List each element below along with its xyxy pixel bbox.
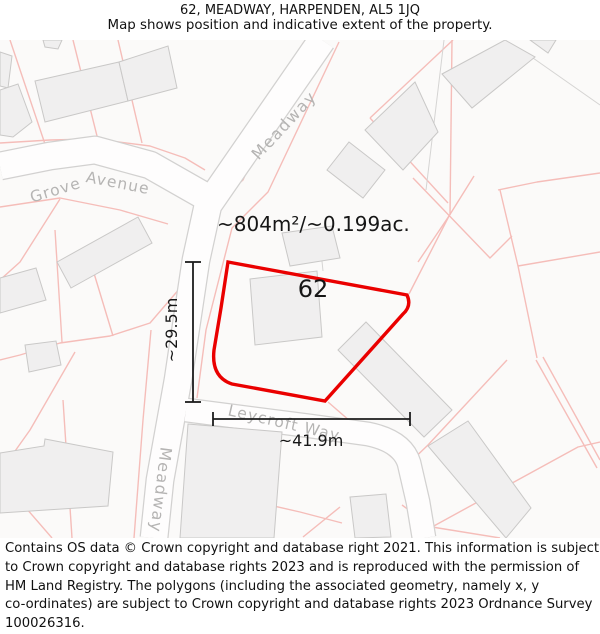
page-subtitle: Map shows position and indicative extent…: [0, 18, 600, 34]
copyright-footer: Contains OS data © Crown copyright and d…: [0, 538, 600, 625]
horizontal-dimension-label: ~41.9m: [279, 431, 344, 450]
footer-line: Contains OS data © Crown copyright and d…: [5, 540, 600, 559]
map-canvas: Grove Avenue Meadway Meadway Leycroft Wa…: [0, 40, 600, 538]
footer-line: to Crown copyright and database rights 2…: [5, 559, 600, 578]
plot-number-label: 62: [298, 275, 329, 303]
header: 62, MEADWAY, HARPENDEN, AL5 1JQ Map show…: [0, 0, 600, 40]
property-map: Grove Avenue Meadway Meadway Leycroft Wa…: [0, 40, 600, 538]
area-label: ~804m²/~0.199ac.: [217, 212, 410, 236]
footer-line: HM Land Registry. The polygons (includin…: [5, 578, 600, 597]
page-title: 62, MEADWAY, HARPENDEN, AL5 1JQ: [0, 0, 600, 18]
footer-line: co-ordinates) are subject to Crown copyr…: [5, 596, 600, 615]
vertical-dimension-label: ~29.5m: [162, 298, 181, 363]
